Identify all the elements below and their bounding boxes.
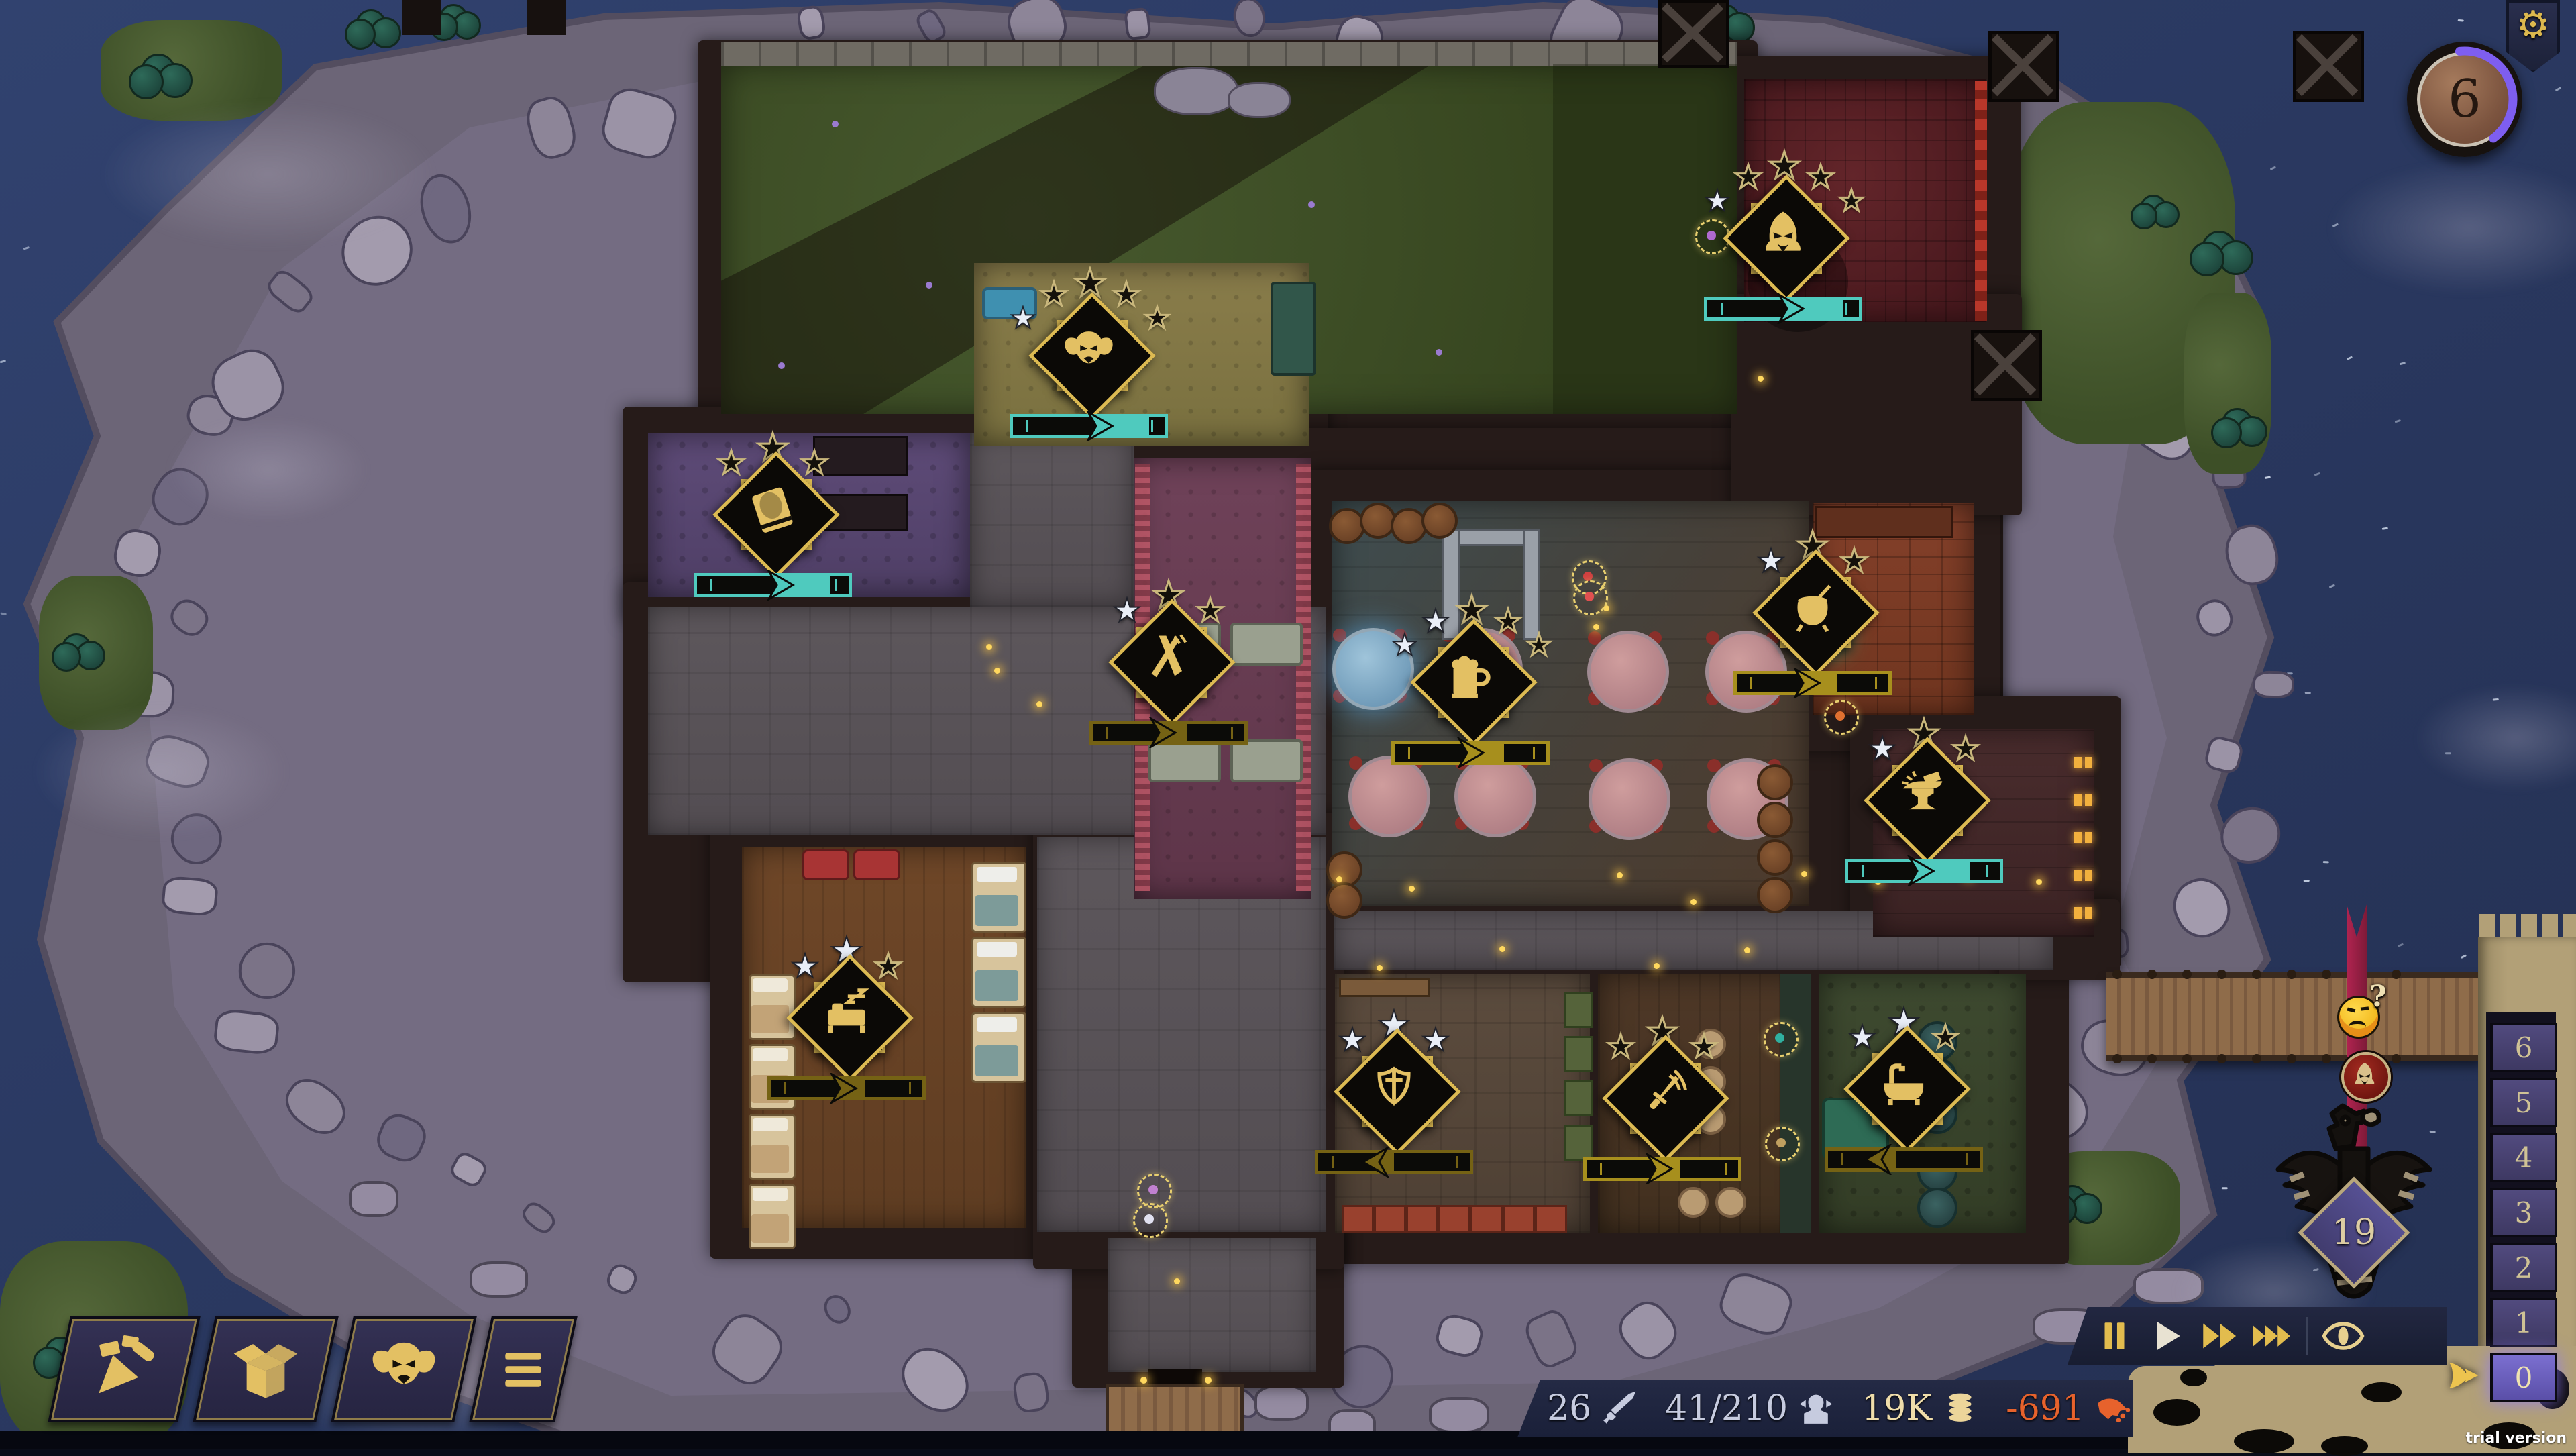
barrel xyxy=(1360,503,1396,539)
tree-canopy xyxy=(345,19,376,50)
npc xyxy=(1583,572,1593,581)
ledge-crack xyxy=(2361,1382,2402,1402)
bed-icon xyxy=(820,988,873,1041)
garden-rock xyxy=(1228,82,1291,118)
rock xyxy=(470,1261,528,1298)
ff2-icon xyxy=(2200,1316,2239,1355)
bridge-post xyxy=(2392,1054,2401,1063)
book-icon xyxy=(746,484,800,538)
corridor xyxy=(1108,1238,1316,1372)
room-progress-bar xyxy=(1583,1157,1741,1181)
star-empty-icon: ★ xyxy=(873,950,902,982)
forge-window xyxy=(2085,794,2092,806)
floor-button-2[interactable]: 2 xyxy=(2490,1243,2557,1292)
glow-dot xyxy=(1377,965,1383,971)
watch-tower-icon xyxy=(1658,0,1729,68)
glow-dot xyxy=(1617,872,1623,878)
bridge-post xyxy=(2112,970,2122,979)
day-clock: 6 xyxy=(2407,42,2522,157)
star-empty-icon: ★ xyxy=(1838,187,1864,216)
star-filled-icon: ★ xyxy=(1756,545,1785,577)
floor-button-1[interactable]: 1 xyxy=(2490,1298,2557,1347)
flower xyxy=(1308,201,1315,208)
star-empty-icon: ★ xyxy=(1733,161,1762,193)
progress-arrow-icon xyxy=(1360,1147,1391,1178)
bar-notch xyxy=(909,1082,911,1094)
forge-window xyxy=(2085,907,2092,919)
bar-notch xyxy=(1456,1156,1458,1168)
star-filled-icon: ★ xyxy=(1338,1024,1366,1056)
fleur-icon xyxy=(2443,1354,2486,1397)
bar-notch xyxy=(1875,677,1877,689)
lounge-bed xyxy=(1271,282,1316,376)
bar-notch xyxy=(1026,420,1028,432)
room-progress-bar xyxy=(1010,414,1168,438)
npc-marker[interactable] xyxy=(1133,1203,1168,1238)
bar-notch xyxy=(710,579,712,591)
crate xyxy=(1470,1205,1503,1233)
barrel xyxy=(1757,764,1793,800)
speed-speed2-button[interactable] xyxy=(2195,1312,2243,1360)
bar-notch xyxy=(1750,677,1752,689)
sword-shield-icon xyxy=(1367,1061,1421,1115)
training-dummy xyxy=(1715,1187,1746,1218)
trowel-icon xyxy=(89,1335,159,1404)
crate xyxy=(1438,1205,1470,1233)
glow-dot xyxy=(1174,1278,1180,1284)
room-progress-bar xyxy=(1315,1150,1473,1174)
pillow xyxy=(977,1017,1017,1032)
watch-tower-icon xyxy=(2293,31,2364,102)
crate xyxy=(1406,1205,1438,1233)
star-empty-icon: ★ xyxy=(1525,631,1552,660)
trial-version-label: trial version xyxy=(2466,1430,2567,1447)
brow xyxy=(2347,1008,2356,1013)
bridge xyxy=(2106,974,2482,1060)
room-badge-kitchen[interactable]: ★★★ xyxy=(1729,507,1896,703)
flower xyxy=(832,121,839,127)
coast-rock xyxy=(161,876,219,917)
tree-canopy xyxy=(2190,242,2224,276)
progress-arrow-icon xyxy=(765,570,796,601)
floor-button-4[interactable]: 4 xyxy=(2490,1133,2557,1182)
npc-marker[interactable] xyxy=(1765,1127,1800,1161)
ledge-crack xyxy=(2153,1399,2200,1426)
ledge-crack xyxy=(2321,1436,2368,1456)
star-empty-icon: ★ xyxy=(1931,1021,1960,1053)
speed-pause-button[interactable] xyxy=(2090,1312,2139,1360)
toolbar-staff-button[interactable] xyxy=(331,1316,477,1422)
entrance-door xyxy=(1148,1369,1202,1385)
progress-arrow-icon xyxy=(828,1073,859,1104)
watch-tower-icon xyxy=(1971,330,2042,401)
dagger-icon xyxy=(1635,1068,1689,1122)
blanket xyxy=(751,1214,789,1243)
glow-dot xyxy=(1758,376,1764,382)
bridge-post xyxy=(2217,1054,2226,1063)
toolbar-menu-button[interactable] xyxy=(469,1316,578,1422)
speed-overlay-eye-button[interactable] xyxy=(2319,1312,2367,1360)
star-filled-icon: ★ xyxy=(1391,631,1417,660)
goblin-icon xyxy=(1062,325,1116,379)
anvil-icon xyxy=(1897,770,1951,824)
visitor-question: ? xyxy=(2369,980,2387,1014)
npc-marker[interactable] xyxy=(1573,580,1608,615)
milestone-value: 19 xyxy=(2314,1193,2394,1272)
hood-icon xyxy=(1756,208,1810,262)
progress-arrow-icon xyxy=(1084,411,1115,441)
chimney xyxy=(527,0,566,35)
tree-canopy xyxy=(129,64,164,99)
crate xyxy=(1374,1205,1406,1233)
npc xyxy=(1144,1214,1154,1224)
hand-coins-icon xyxy=(2094,1390,2131,1427)
room-progress-bar xyxy=(1733,671,1892,695)
training-strip xyxy=(1780,974,1811,1233)
npc-marker[interactable] xyxy=(1764,1022,1799,1057)
bathtub-icon xyxy=(1877,1059,1931,1112)
room-badge-tavern-hall[interactable]: ★★★★★ xyxy=(1387,577,1554,773)
progress-arrow-icon xyxy=(1775,293,1806,324)
anvil-icon xyxy=(1897,770,1951,824)
mist xyxy=(168,416,369,523)
progress-arrow-icon xyxy=(1455,737,1486,768)
star-empty-icon: ★ xyxy=(1806,161,1835,193)
watch-tower-icon xyxy=(1988,31,2059,102)
tree-canopy xyxy=(2211,417,2242,448)
bed-icon xyxy=(820,988,873,1041)
bar-notch xyxy=(1332,1156,1334,1168)
mist xyxy=(101,101,436,248)
garden-rock xyxy=(1154,67,1238,115)
visitor-faction-badge[interactable] xyxy=(2341,1052,2391,1102)
bar-notch xyxy=(1725,1163,1727,1175)
divider xyxy=(2306,1317,2308,1355)
forge-window xyxy=(2085,832,2092,843)
floor-button-5[interactable]: 5 xyxy=(2490,1078,2557,1127)
room-progress-bar xyxy=(1391,741,1550,765)
progress-arrow-icon xyxy=(1905,855,1936,886)
bridge-post xyxy=(2322,970,2331,979)
garden-north-wall xyxy=(721,42,1737,66)
bar-notch xyxy=(1862,865,1864,877)
bar-notch xyxy=(1231,727,1233,739)
blanket xyxy=(975,970,1018,1001)
glow-dot xyxy=(1593,624,1599,630)
star-empty-icon: ★ xyxy=(1839,545,1868,577)
star-filled-icon: ★ xyxy=(1421,1024,1450,1056)
bathtub xyxy=(1917,1188,1957,1228)
goblin-icon xyxy=(1062,325,1116,379)
frown xyxy=(2349,1021,2366,1033)
bridge-post xyxy=(2287,970,2296,979)
bar-notch xyxy=(1721,303,1723,315)
forge-window xyxy=(2085,757,2092,768)
forge-window xyxy=(2085,870,2092,881)
glow-dot xyxy=(2036,879,2042,885)
fork-knife-icon xyxy=(1142,632,1195,686)
bridge-post xyxy=(2322,1054,2331,1063)
bar-notch xyxy=(1986,865,1988,877)
coast-rock xyxy=(1124,7,1152,41)
progress-arrow-icon xyxy=(1644,1153,1674,1184)
star-filled-icon: ★ xyxy=(1868,733,1896,765)
speed-bar xyxy=(2068,1307,2447,1365)
bridge-post xyxy=(2252,970,2261,979)
couch xyxy=(802,849,849,880)
toolbar-build-button[interactable] xyxy=(48,1316,201,1422)
bottom-toolbar xyxy=(59,1316,566,1422)
npc xyxy=(1776,1138,1786,1147)
bridge-post xyxy=(2287,1054,2296,1063)
star-filled-icon: ★ xyxy=(1847,1021,1876,1053)
glow-dot xyxy=(994,668,1000,674)
bridge-post xyxy=(2147,970,2157,979)
flower xyxy=(1436,349,1442,356)
npc xyxy=(1585,592,1594,601)
star-empty-icon: ★ xyxy=(1493,605,1522,637)
rock xyxy=(349,1181,398,1217)
sword-icon xyxy=(1601,1390,1638,1427)
forge-window xyxy=(2074,794,2082,806)
bar-notch xyxy=(1151,420,1153,432)
barrel xyxy=(1757,839,1793,876)
bar-notch xyxy=(1533,747,1535,759)
bar-notch xyxy=(1106,727,1108,739)
mist xyxy=(34,705,288,839)
cauldron-icon xyxy=(1786,582,1839,636)
star-empty-icon: ★ xyxy=(1689,1031,1718,1063)
bridge-post xyxy=(2112,1054,2122,1063)
hood-icon xyxy=(1756,208,1810,262)
milestone-diamond: 19 xyxy=(2314,1193,2394,1272)
cauldron-icon xyxy=(1786,582,1839,636)
brow xyxy=(2361,1006,2369,1010)
star-empty-icon: ★ xyxy=(1195,594,1224,627)
lamp xyxy=(1205,1377,1212,1384)
barrel xyxy=(1757,877,1793,913)
speed-play-button[interactable] xyxy=(2143,1312,2191,1360)
star-filled-icon: ★ xyxy=(1704,187,1730,216)
forge-window xyxy=(2074,907,2082,919)
pillow xyxy=(977,867,1017,882)
glow-dot xyxy=(1744,947,1750,953)
pause-icon xyxy=(2095,1316,2134,1355)
lamp xyxy=(1140,1377,1147,1384)
resource-defense: 26 xyxy=(1547,1388,1638,1428)
crate xyxy=(1342,1205,1374,1233)
training-dummy xyxy=(1678,1187,1709,1218)
star-empty-icon: ★ xyxy=(716,447,745,479)
blanket xyxy=(975,1045,1018,1076)
barrel xyxy=(1329,508,1365,544)
room-badge-dormitory[interactable]: ★★★ xyxy=(763,913,930,1108)
progress-arrow-icon xyxy=(1863,1144,1894,1175)
dagger-icon xyxy=(1635,1068,1689,1122)
room-badge-workshop[interactable]: ★★★ xyxy=(1840,695,2008,891)
forge-window xyxy=(2074,757,2082,768)
star-empty-icon: ★ xyxy=(1606,1031,1635,1063)
glow-dot xyxy=(1654,963,1660,969)
barrel xyxy=(1421,503,1458,539)
hooded-crest-icon xyxy=(2350,1061,2379,1090)
speed-speed3-button[interactable] xyxy=(2247,1312,2296,1360)
star-filled-icon: ★ xyxy=(1421,605,1450,637)
glow-dot xyxy=(1801,871,1807,877)
star-empty-icon: ★ xyxy=(800,447,828,479)
bridge-post xyxy=(2147,1054,2157,1063)
npc xyxy=(1148,1185,1158,1194)
mug-icon xyxy=(1444,652,1497,706)
crate xyxy=(1535,1205,1567,1233)
barrel xyxy=(1757,802,1793,838)
resource-bar: 2641/21019K-69110-day period 9 xyxy=(1517,1380,2133,1437)
floor-button-0[interactable]: 0 xyxy=(2490,1353,2557,1402)
room-badge-lounge[interactable]: ★★★★★ xyxy=(1005,250,1173,446)
resource-defense-value: 26 xyxy=(1547,1388,1591,1428)
floor-button-3[interactable]: 3 xyxy=(2490,1188,2557,1237)
ff3-icon xyxy=(2252,1316,2291,1355)
room-badge-guard-room[interactable]: ★★★ xyxy=(1310,986,1478,1182)
room-progress-bar xyxy=(767,1076,926,1100)
forge-window xyxy=(2074,832,2082,843)
progress-arrow-icon xyxy=(1147,717,1178,748)
chimney xyxy=(402,0,441,35)
progress-arrow-icon xyxy=(1791,668,1822,698)
resource-gold-value: 19K xyxy=(1862,1388,1932,1428)
bar-notch xyxy=(1841,1153,1843,1165)
bar-notch xyxy=(1845,303,1847,315)
resource-balance: -691 xyxy=(2006,1388,2131,1428)
room-progress-bar xyxy=(1089,721,1248,745)
barrel xyxy=(1326,882,1362,919)
bar-notch xyxy=(784,1082,786,1094)
bridge-post xyxy=(2392,970,2401,979)
couch xyxy=(853,849,900,880)
star-empty-icon: ★ xyxy=(1951,733,1980,765)
room-progress-bar xyxy=(1825,1147,1983,1172)
resource-gold: 19K xyxy=(1862,1388,1979,1428)
bridge-post xyxy=(2252,1054,2261,1063)
glow-dot xyxy=(1336,876,1342,882)
tavern-table xyxy=(1587,631,1669,713)
pillow xyxy=(753,1188,788,1201)
goblin-bust-icon xyxy=(1797,1390,1835,1427)
hideout-ladder xyxy=(1975,81,1987,321)
star-filled-icon: ★ xyxy=(1010,304,1036,333)
coins-icon xyxy=(1941,1390,1979,1427)
blanket xyxy=(751,1145,789,1173)
eye-icon xyxy=(2321,1314,2365,1358)
star-filled-icon: ★ xyxy=(1112,594,1141,627)
resource-balance-value: -691 xyxy=(2006,1388,2084,1428)
menu-icon xyxy=(495,1341,551,1398)
room-progress-bar xyxy=(1845,859,2003,883)
bar-notch xyxy=(1966,1153,1968,1165)
star-empty-icon: ★ xyxy=(1144,304,1170,333)
bridge-post xyxy=(2182,1054,2192,1063)
box-icon xyxy=(231,1335,301,1404)
game-map: ?★★★★★★★★★★★★★★★★★★★★★★★★★★★★★★★★★★★★★★★ xyxy=(0,0,2576,1449)
dining-trim xyxy=(1296,464,1311,891)
blanket xyxy=(975,895,1018,926)
floor-button-6[interactable]: 6 xyxy=(2490,1023,2557,1072)
active-floor-arrow-icon xyxy=(2443,1354,2486,1397)
barrel xyxy=(1391,508,1427,544)
glow-dot xyxy=(1036,701,1042,707)
fork-knife-icon xyxy=(1142,632,1195,686)
room-progress-bar xyxy=(1704,297,1862,321)
bar-notch xyxy=(1408,747,1410,759)
ledge-crack xyxy=(2234,1429,2294,1453)
star-empty-icon: ★ xyxy=(1112,278,1140,311)
room-progress-bar xyxy=(694,573,852,597)
glow-dot xyxy=(1499,946,1505,952)
glow-dot xyxy=(1409,886,1415,892)
clock-value: 6 xyxy=(2407,42,2522,157)
star-filled-icon: ★ xyxy=(790,950,819,982)
flower xyxy=(926,282,932,289)
star-empty-icon: ★ xyxy=(1039,278,1068,311)
goblin-icon xyxy=(369,1335,439,1404)
room-badge-bathhouse[interactable]: ★★★ xyxy=(1820,984,1988,1180)
ledge-crack xyxy=(2180,1369,2207,1386)
resource-guests: 41/210 xyxy=(1665,1388,1835,1428)
resource-guests-value: 41/210 xyxy=(1665,1388,1788,1428)
tavern-table xyxy=(1589,758,1670,840)
bridge-post xyxy=(2217,970,2226,979)
bar-notch xyxy=(835,579,837,591)
bar-notch xyxy=(1600,1163,1602,1175)
pillow xyxy=(753,1118,788,1131)
toolbar-storage-button[interactable] xyxy=(193,1316,339,1422)
pillow xyxy=(977,942,1017,957)
flower xyxy=(778,362,785,369)
coast-rock xyxy=(2253,671,2295,699)
room-badge-dining-room[interactable]: ★★★ xyxy=(1085,557,1252,753)
rock xyxy=(1429,1397,1489,1433)
glow-dot xyxy=(1690,899,1697,905)
forge-window xyxy=(2074,870,2082,881)
rock xyxy=(1254,1385,1309,1421)
room-badge-training-room[interactable]: ★★★ xyxy=(1578,993,1746,1189)
glow-dot xyxy=(986,644,992,650)
npc xyxy=(1775,1033,1784,1043)
tree-canopy xyxy=(52,642,81,672)
crate xyxy=(1503,1205,1535,1233)
room-badge-hideout[interactable]: ★★★★★ xyxy=(1699,133,1867,329)
bathtub-icon xyxy=(1877,1059,1931,1112)
room-badge-library[interactable]: ★★★ xyxy=(689,409,857,605)
book-icon xyxy=(746,484,800,538)
bridge-post xyxy=(2182,970,2192,979)
sword-shield-icon xyxy=(1367,1061,1421,1115)
mug-icon xyxy=(1444,652,1497,706)
play-icon xyxy=(2147,1316,2186,1355)
